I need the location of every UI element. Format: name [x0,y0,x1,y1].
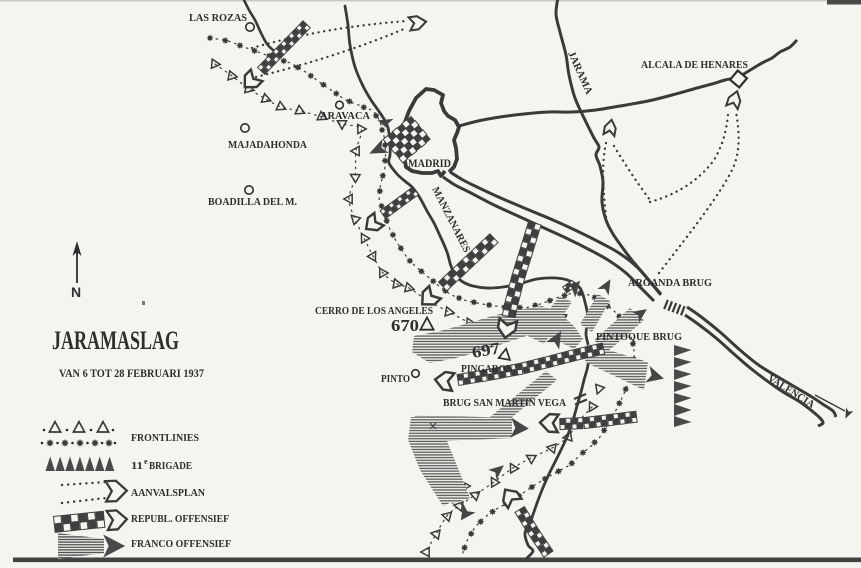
svg-text:REPUBL. OFFENSIEF: REPUBL. OFFENSIEF [131,513,229,525]
svg-text:ARAVACA: ARAVACA [320,111,370,122]
svg-text:670: 670 [391,316,419,335]
svg-text:MADRID: MADRID [408,156,451,170]
svg-text:BRUG SAN MARTIN VEGA: BRUG SAN MARTIN VEGA [443,398,566,409]
svg-text:BOADILLA DEL M.: BOADILLA DEL M. [208,197,297,208]
svg-text:PINTO: PINTO [381,374,410,385]
svg-text:AANVALSPLAN: AANVALSPLAN [131,487,205,499]
svg-text:11: 11 [131,460,143,472]
svg-text:PINTOQUE BRUG: PINTOQUE BRUG [596,332,682,343]
svg-text:N: N [71,284,81,300]
svg-text:FRONTLINIES: FRONTLINIES [131,432,199,444]
svg-text:FRANCO OFFENSIEF: FRANCO OFFENSIEF [131,538,231,550]
svg-text:JARAMASLAG: JARAMASLAG [52,326,179,355]
svg-text:PINGARON: PINGARON [461,364,513,375]
svg-text:VAN 6 TOT 28 FEBRUARI 1937: VAN 6 TOT 28 FEBRUARI 1937 [59,366,204,380]
svg-text:ARGANDA BRUG: ARGANDA BRUG [628,278,712,289]
svg-text:e: e [144,457,148,466]
svg-text:BRIGADE: BRIGADE [149,460,192,472]
svg-text:ALCALA DE HENARES: ALCALA DE HENARES [641,60,748,71]
svg-text:LAS ROZAS: LAS ROZAS [189,13,247,24]
svg-text:MAJADAHONDA: MAJADAHONDA [228,140,307,151]
